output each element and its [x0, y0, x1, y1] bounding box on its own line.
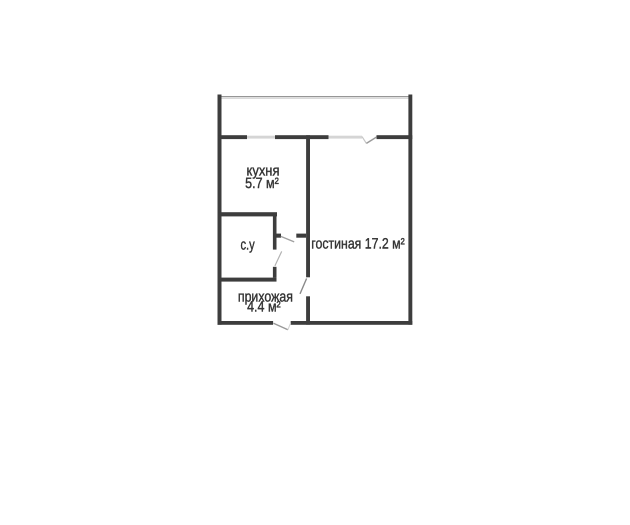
- svg-text:5.7 м²: 5.7 м²: [245, 175, 279, 192]
- svg-text:с.у: с.у: [240, 237, 255, 254]
- svg-text:4.4 м²: 4.4 м²: [247, 299, 281, 316]
- svg-text:гостиная 17.2 м²: гостиная 17.2 м²: [311, 235, 405, 252]
